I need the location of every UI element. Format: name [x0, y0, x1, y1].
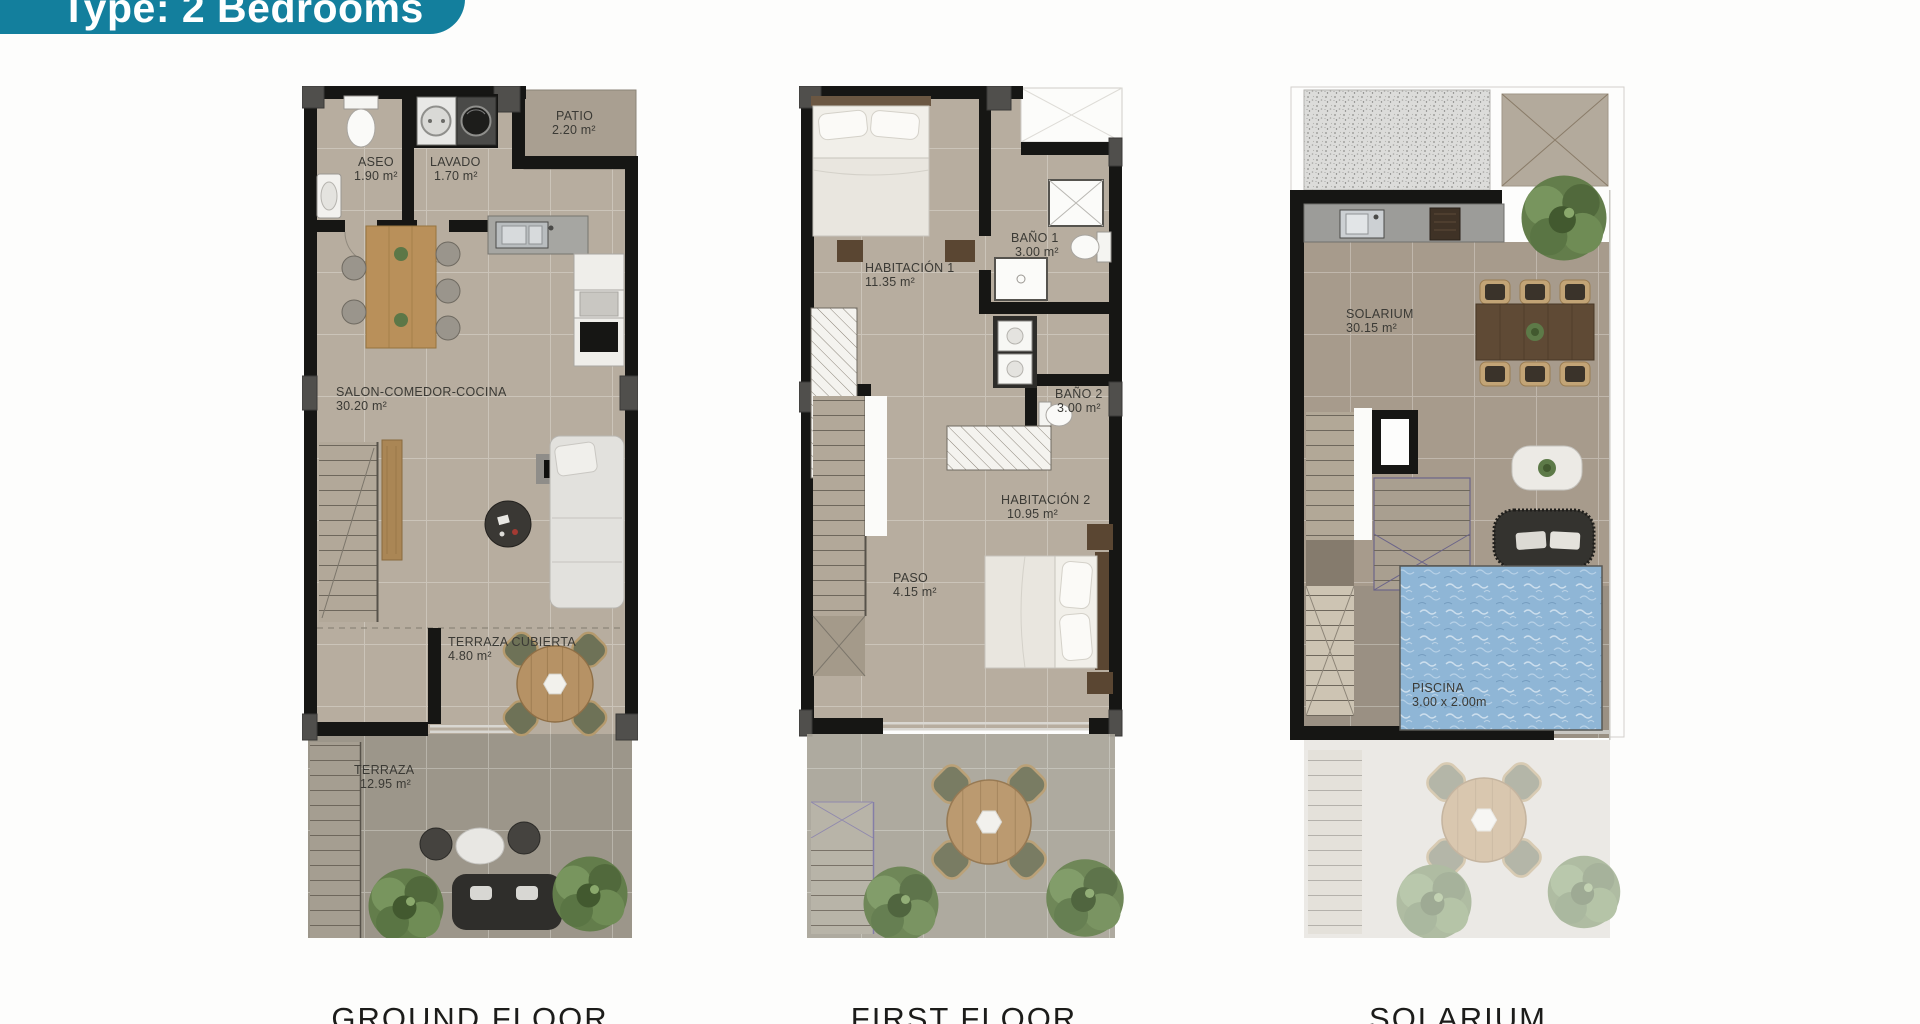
svg-text:1.90 m²: 1.90 m² — [354, 169, 398, 183]
caption-ground-floor: GROUND FLOOR — [302, 1001, 638, 1024]
svg-text:4.15 m²: 4.15 m² — [893, 585, 937, 599]
svg-text:12.95 m²: 12.95 m² — [360, 777, 411, 791]
svg-text:3.00 m²: 3.00 m² — [1015, 245, 1059, 259]
lavado-fixtures — [414, 94, 498, 148]
dining-table-icon — [366, 226, 436, 348]
room-label-salon: SALON-COMEDOR-COCINA — [336, 385, 507, 399]
caption-solarium: SOLARIUM — [1288, 1001, 1628, 1024]
svg-text:2.20 m²: 2.20 m² — [552, 123, 596, 137]
first-terrace — [807, 734, 1124, 938]
floorplan-sheet: Type: 2 Bedrooms — [0, 0, 1920, 1024]
room-label-piscina: PISCINA — [1412, 681, 1464, 695]
terrace-table-icon — [928, 761, 1050, 883]
caption-first-floor: FIRST FLOOR — [799, 1001, 1129, 1024]
oven-icon — [580, 322, 618, 352]
room-label-habitacion1: HABITACIÓN 1 — [865, 260, 955, 275]
plant-icon — [1548, 856, 1621, 929]
svg-text:30.20 m²: 30.20 m² — [336, 399, 387, 413]
nightstand-icon — [837, 240, 863, 262]
wardrobe-icon — [947, 426, 1051, 470]
plant-icon — [1522, 176, 1607, 261]
svg-text:1.70 m²: 1.70 m² — [434, 169, 478, 183]
svg-text:3.00 x 2.00m: 3.00 x 2.00m — [1412, 695, 1487, 709]
terrace-table-icon — [1423, 759, 1545, 881]
wood-shelf — [382, 440, 402, 560]
room-label-bano1: BAÑO 1 — [1011, 231, 1059, 245]
coffee-table-icon — [485, 501, 531, 547]
ground-floor-plan: ASEO 1.90 m² LAVADO 1.70 m² PATIO 2.20 m… — [302, 86, 638, 938]
plant-icon — [1046, 859, 1124, 937]
nightstand-icon — [1087, 524, 1113, 550]
svg-text:30.15 m²: 30.15 m² — [1346, 321, 1397, 335]
terrace-table-icon — [456, 828, 504, 864]
room-label-lavado: LAVADO — [430, 155, 481, 169]
shower-tray-icon — [995, 258, 1047, 300]
room-label-bano2: BAÑO 2 — [1055, 387, 1103, 401]
room-label-terraza-cubierta: TERRAZA CUBIERTA — [448, 635, 576, 649]
room-label-solarium: SOLARIUM — [1346, 307, 1414, 321]
terrace-chair-icon — [420, 828, 452, 860]
plant-icon — [1397, 865, 1472, 939]
solarium-dining — [1476, 280, 1594, 386]
room-label-terraza: TERRAZA — [354, 763, 415, 777]
svg-text:3.00 m²: 3.00 m² — [1057, 401, 1101, 415]
bbq-icon — [1430, 208, 1460, 240]
solarium-ghost-terrace — [1304, 740, 1620, 938]
type-badge-label: Type: 2 Bedrooms — [61, 0, 424, 34]
terrace-chair-icon — [508, 822, 540, 854]
toilet-icon — [344, 96, 378, 109]
svg-text:4.80 m²: 4.80 m² — [448, 649, 492, 663]
svg-text:10.95 m²: 10.95 m² — [1007, 507, 1058, 521]
solarium-plan: SOLARIUM 30.15 m² PISCINA 3.00 x 2.00m — [1288, 86, 1628, 938]
nightstand-icon — [1087, 672, 1113, 694]
room-label-patio: PATIO — [556, 109, 593, 123]
type-badge: Type: 2 Bedrooms — [0, 0, 465, 34]
bed-headboard — [811, 96, 931, 106]
plant-icon — [553, 857, 628, 932]
first-floor-plan: HABITACIÓN 1 11.35 m² BAÑO 1 3.00 m² BAÑ… — [799, 86, 1129, 938]
room-label-paso: PASO — [893, 571, 928, 585]
room-label-aseo: ASEO — [358, 155, 394, 169]
stair-void — [1381, 419, 1409, 465]
nightstand-icon — [945, 240, 975, 262]
outdoor-kitchen — [1304, 204, 1504, 242]
plant-icon — [864, 867, 939, 939]
outdoor-sofa-icon — [452, 874, 562, 930]
svg-text:11.35 m²: 11.35 m² — [865, 275, 915, 289]
gravel-area — [1304, 90, 1490, 190]
counter — [1304, 204, 1504, 242]
room-label-habitacion2: HABITACIÓN 2 — [1001, 492, 1091, 507]
